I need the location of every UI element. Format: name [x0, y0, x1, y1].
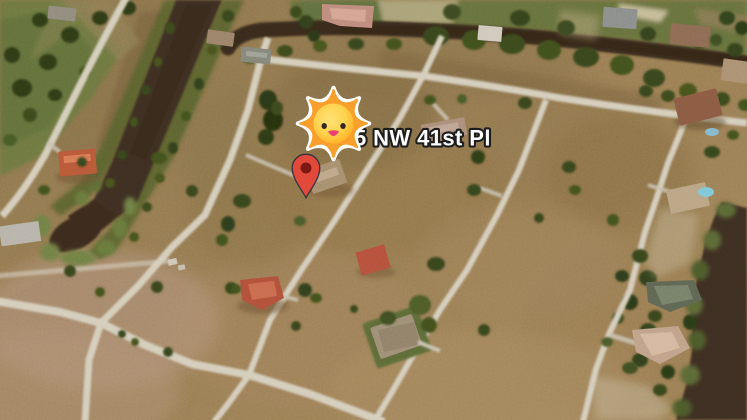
svg-text:5 NW 41st Pl: 5 NW 41st Pl	[354, 126, 491, 151]
